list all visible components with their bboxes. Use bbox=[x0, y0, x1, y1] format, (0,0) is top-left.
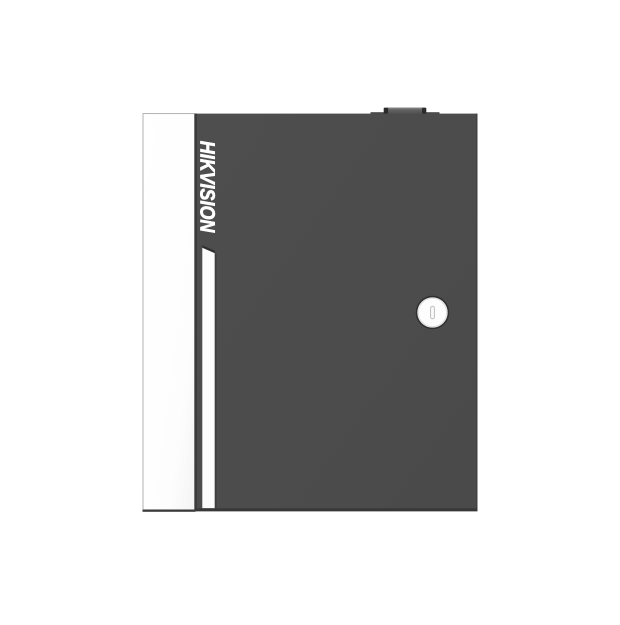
svg-text:HIKVISION: HIKVISION bbox=[196, 141, 219, 233]
